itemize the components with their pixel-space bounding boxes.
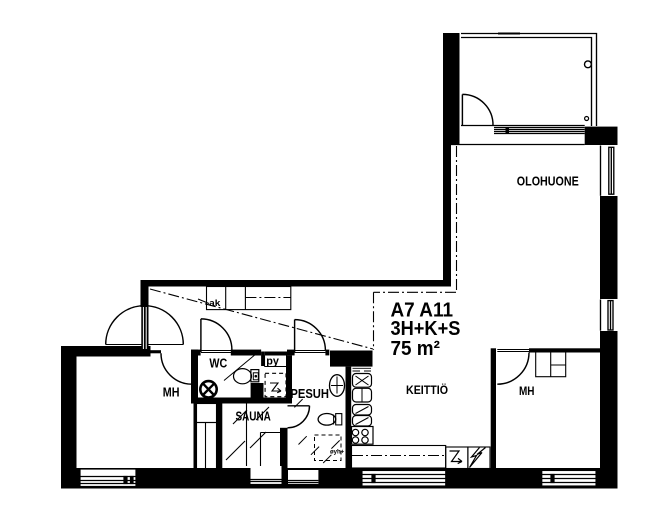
svg-text:py: py [266,356,280,368]
svg-text:75 m²: 75 m² [391,338,441,360]
svg-text:KEITTIÖ: KEITTIÖ [406,382,448,397]
svg-text:OLOHUONE: OLOHUONE [517,175,579,189]
svg-text:SAUNA: SAUNA [236,409,271,423]
svg-text:WC: WC [209,357,227,371]
svg-text:3H+K+S: 3H+K+S [391,318,461,340]
svg-text:MH: MH [519,384,535,398]
svg-text:øyh+: øyh+ [330,450,345,456]
svg-text:MH: MH [163,385,180,400]
svg-text:ak: ak [209,298,221,309]
svg-text:PESUH: PESUH [290,386,329,401]
